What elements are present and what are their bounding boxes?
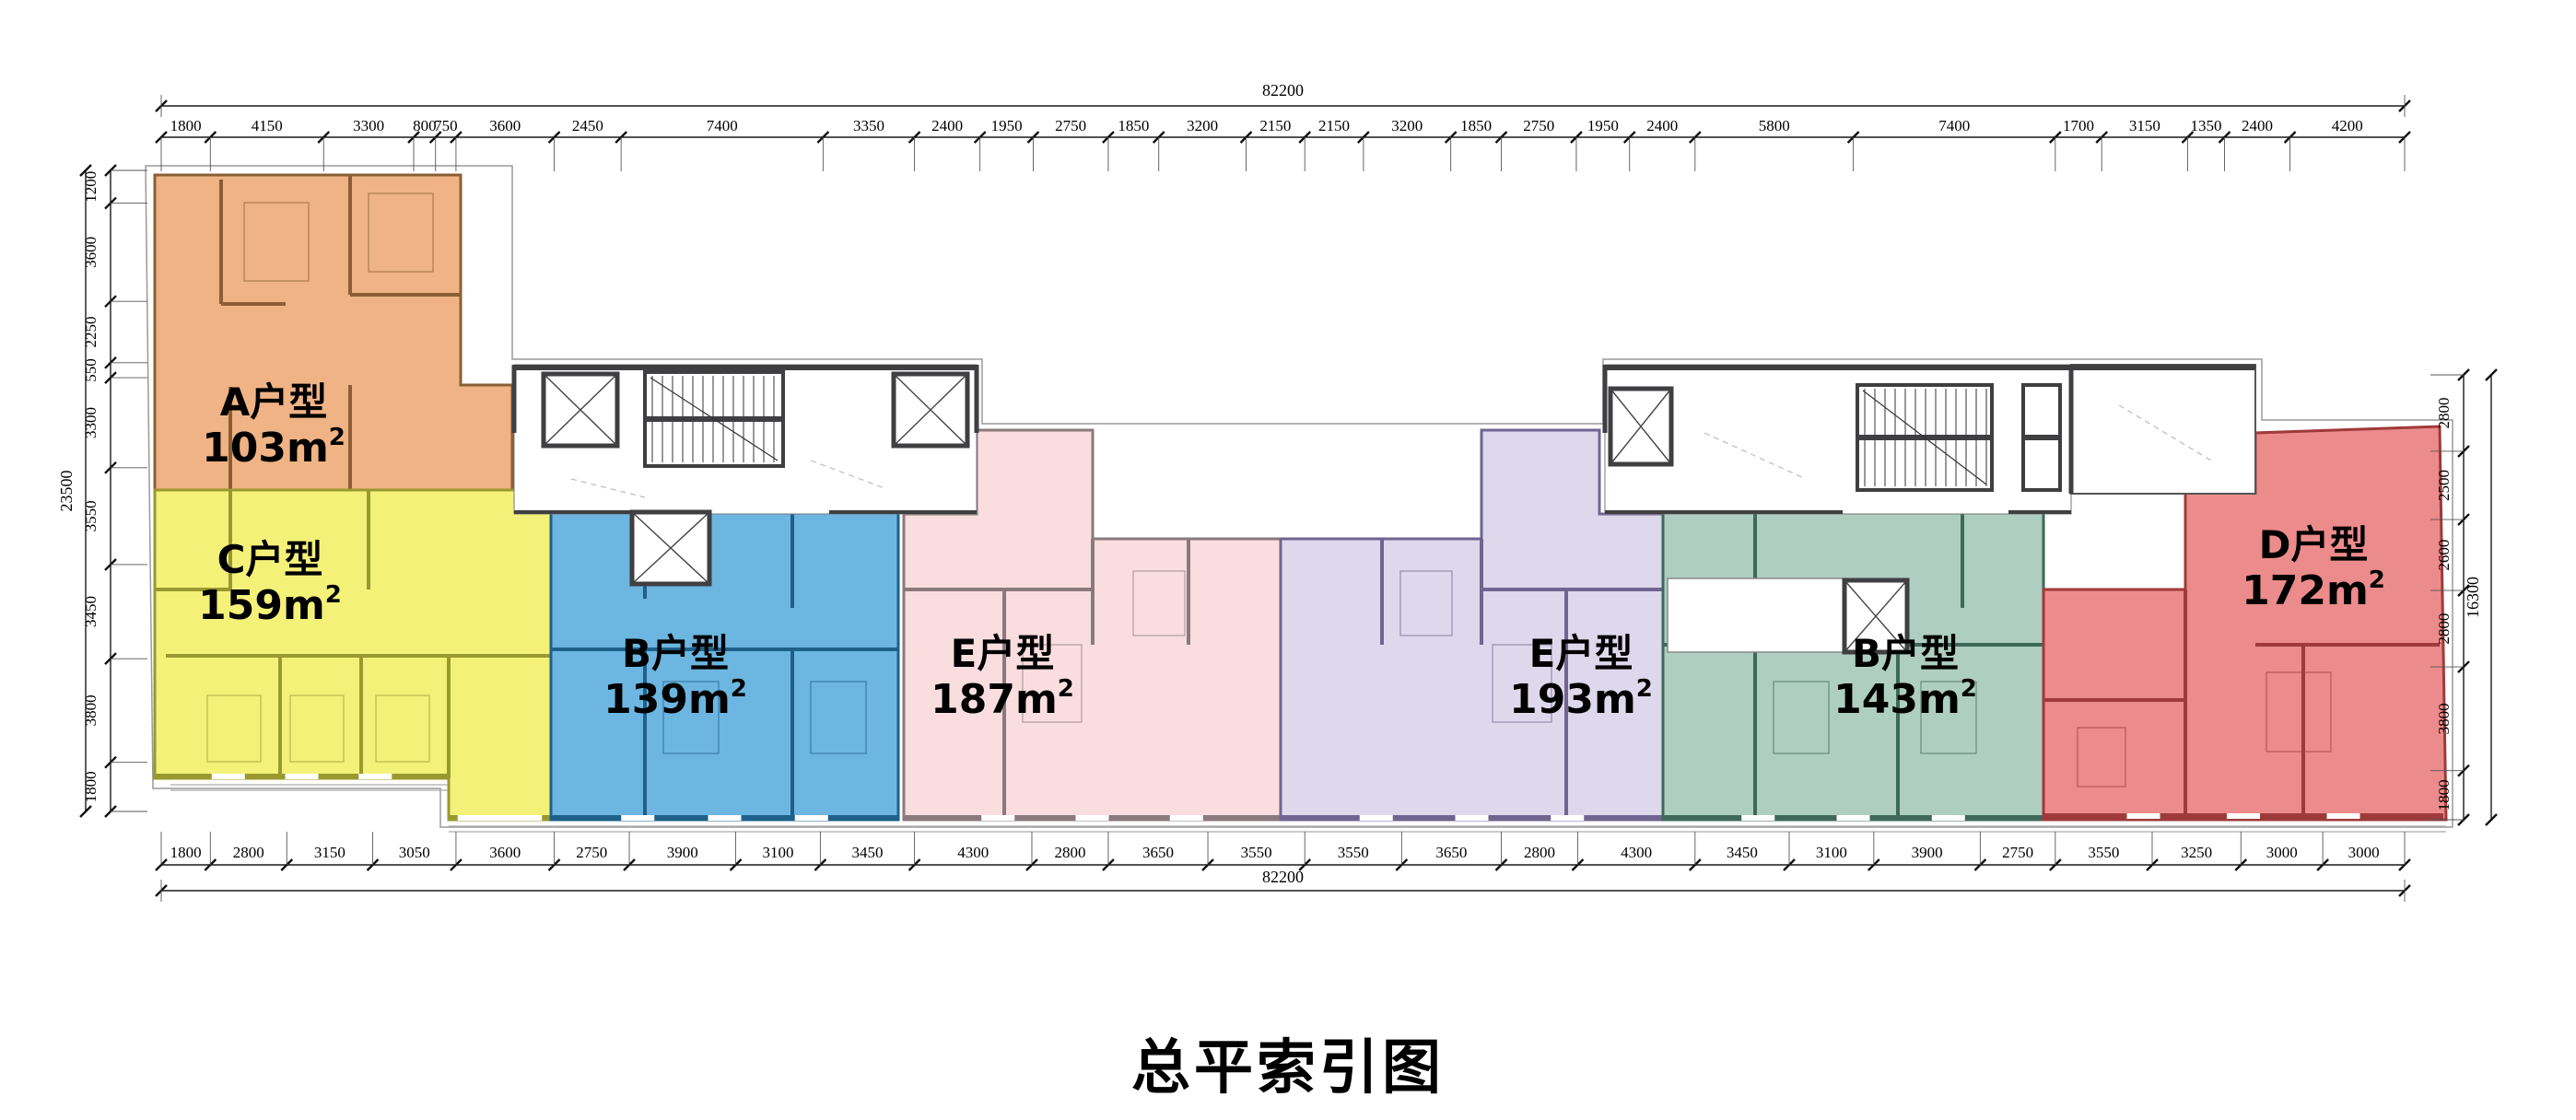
- core2-area: [1605, 365, 2071, 514]
- dim-right-segment-label: 3800: [2435, 703, 2453, 734]
- unit-label-A: A户型: [220, 379, 328, 425]
- unit-label-B1: B户型: [622, 631, 729, 676]
- dim-bottom-segment-label: 4300: [1621, 844, 1652, 861]
- unit-label-D: D户型: [2259, 522, 2369, 567]
- dim-bottom-segment-label: 2750: [576, 844, 607, 861]
- unit-area-E2: 193m2: [1509, 675, 1653, 723]
- dim-bottom-segment-label: 4300: [957, 844, 989, 861]
- dim-top-segment-label: 3200: [1187, 117, 1218, 134]
- window-gap-C: [358, 774, 392, 779]
- dim-left-segment-label: 3550: [82, 500, 100, 531]
- window-gap-E1: [981, 815, 1014, 821]
- window-gap-E1: [1170, 815, 1203, 821]
- unit-area-E1: 187m2: [931, 675, 1074, 723]
- dim-left-segment-label: 3450: [82, 596, 100, 627]
- window-gap-B2: [1932, 815, 1965, 821]
- dim-top-segment-label: 2400: [2242, 117, 2273, 134]
- dim-top-segment-label: 800: [413, 117, 437, 134]
- core2-side-room: [2071, 365, 2255, 494]
- window-gap-B1: [708, 815, 742, 821]
- dim-top-segment-label: 2150: [1259, 117, 1291, 134]
- dim-bottom-segment-label: 3100: [762, 844, 793, 861]
- window-gap-C: [286, 774, 319, 779]
- dim-left-segment-label: 1200: [82, 171, 100, 203]
- dim-top-segment-label: 1950: [991, 117, 1023, 134]
- dimension-row-bottom: 1800280031503050360027503900310034504300…: [156, 832, 2410, 902]
- unit-label-E1: E户型: [951, 631, 1055, 676]
- dim-bottom-segment-label: 3900: [1912, 844, 1943, 861]
- dim-bottom-segment-label: 3550: [1241, 844, 1272, 861]
- dim-top-segment-label: 2400: [931, 117, 963, 134]
- dim-top-segment-label: 1850: [1460, 117, 1492, 134]
- dim-top-segment-label: 3350: [853, 117, 884, 134]
- dim-top-segment-label: 5800: [1759, 117, 1790, 134]
- dim-bottom-segment-label: 3150: [314, 844, 345, 861]
- dim-top-segment-label: 4200: [2332, 117, 2363, 134]
- unit-label-C: C户型: [217, 537, 323, 582]
- window-gap-E2: [1360, 815, 1393, 821]
- dim-bottom-segment-label: 3000: [2266, 844, 2298, 861]
- dim-bottom-segment-label: 3550: [2088, 844, 2119, 861]
- unit-area-D: 172m2: [2242, 566, 2385, 614]
- dim-bottom-segment-label: 3650: [1142, 844, 1174, 861]
- dim-top-segment-label: 750: [434, 117, 458, 134]
- window-gap-D: [2227, 813, 2260, 819]
- dim-top-segment-label: 7400: [707, 117, 738, 134]
- core2-entry-corridor: [1668, 578, 1844, 652]
- unit-area-C: 159m2: [198, 581, 342, 629]
- window-gap-C: [509, 815, 542, 821]
- dim-top-segment-label: 3600: [489, 117, 521, 134]
- core2-shaft-2: [2023, 438, 2060, 490]
- dim-top-segment-label: 1700: [2063, 117, 2094, 134]
- dim-bottom-segment-label: 3450: [1727, 844, 1758, 861]
- core2-shaft-1: [2023, 385, 2060, 437]
- window-gap-B1: [795, 815, 828, 821]
- window-gap-B1: [621, 815, 654, 821]
- unit-regions: [155, 175, 2446, 821]
- unit-area-A: 103m2: [202, 424, 345, 472]
- window-gap-E1: [1076, 815, 1109, 821]
- dim-top-segment-label: 2750: [1055, 117, 1086, 134]
- dim-top-segment-label: 4150: [252, 117, 283, 134]
- dim-bottom-segment-label: 3650: [1435, 844, 1467, 861]
- window-gap-D: [2127, 813, 2160, 819]
- dim-right-segment-label: 1800: [2435, 779, 2453, 811]
- window-gap-B2: [1837, 815, 1870, 821]
- dim-right-segment-label: 2600: [2435, 540, 2453, 571]
- unit-label-E2: E户型: [1529, 631, 1633, 676]
- dim-bottom-total-label: 82200: [1262, 868, 1304, 886]
- dim-left-total-label: 23500: [57, 471, 76, 512]
- dim-bottom-segment-label: 3600: [489, 844, 521, 861]
- dim-bottom-segment-label: 3900: [667, 844, 698, 861]
- dim-left-segment-label: 3600: [82, 237, 100, 268]
- unit-area-B1: 139m2: [603, 675, 747, 723]
- dim-top-segment-label: 1950: [1587, 117, 1619, 134]
- dim-bottom-segment-label: 1800: [170, 844, 202, 861]
- dim-bottom-segment-label: 2800: [1524, 844, 1555, 861]
- dim-top-segment-label: 7400: [1938, 117, 1970, 134]
- dim-right-segment-label: 2800: [2435, 397, 2453, 428]
- dim-bottom-segment-label: 3450: [851, 844, 883, 861]
- dim-top-segment-label: 1800: [170, 117, 202, 134]
- window-gap-B2: [1741, 815, 1774, 821]
- dim-top-total-label: 82200: [1262, 81, 1304, 99]
- window-gap-D: [2327, 813, 2360, 819]
- dim-left-segment-label: 1800: [82, 771, 100, 802]
- dim-top-segment-label: 2450: [572, 117, 603, 134]
- dim-top-segment-label: 2150: [1318, 117, 1350, 134]
- window-gap-E2: [1551, 815, 1584, 821]
- dim-right-segment-label: 2500: [2435, 470, 2453, 501]
- dim-bottom-segment-label: 3250: [2181, 844, 2212, 861]
- dim-left-segment-label: 550: [82, 358, 100, 382]
- dim-top-segment-label: 2400: [1646, 117, 1678, 134]
- dim-top-segment-label: 3300: [353, 117, 384, 134]
- dim-top-segment-label: 3200: [1391, 117, 1423, 134]
- dimension-column-left: 1200360022505503300355034503800180023500: [57, 165, 147, 817]
- dim-bottom-segment-label: 3050: [399, 844, 430, 861]
- dim-bottom-segment-label: 3000: [2348, 844, 2380, 861]
- dim-left-segment-label: 3800: [82, 694, 100, 726]
- window-gap-C: [212, 774, 245, 779]
- dim-right-segment-label: 2800: [2435, 613, 2453, 645]
- dim-bottom-segment-label: 2750: [2002, 844, 2033, 861]
- dim-bottom-segment-label: 3100: [1816, 844, 1847, 861]
- dim-bottom-segment-label: 2800: [1054, 844, 1085, 861]
- unit-label-B2: B户型: [1852, 631, 1959, 676]
- dim-top-segment-label: 2750: [1523, 117, 1554, 134]
- dim-right-total-label: 16300: [2464, 577, 2482, 618]
- floorplan-drawing: A户型103m2C户型159m2B户型139m2E户型187m2E户型193m2…: [0, 0, 2576, 1120]
- dim-top-segment-label: 1850: [1118, 117, 1149, 134]
- dim-left-segment-label: 3300: [82, 407, 100, 438]
- dim-bottom-segment-label: 3550: [1338, 844, 1369, 861]
- dim-top-segment-label: 3150: [2129, 117, 2160, 134]
- floorplan-page: A户型103m2C户型159m2B户型139m2E户型187m2E户型193m2…: [0, 0, 2576, 1120]
- dim-top-segment-label: 1350: [2190, 117, 2221, 134]
- window-gap-E2: [1456, 815, 1489, 821]
- page-title: 总平索引图: [0, 1021, 2576, 1105]
- unit-area-B2: 143m2: [1833, 675, 1977, 723]
- dim-bottom-segment-label: 2800: [233, 844, 264, 861]
- dimension-row-top: 8220018004150330080075036002450740033502…: [156, 81, 2410, 171]
- dim-left-segment-label: 2250: [82, 316, 100, 347]
